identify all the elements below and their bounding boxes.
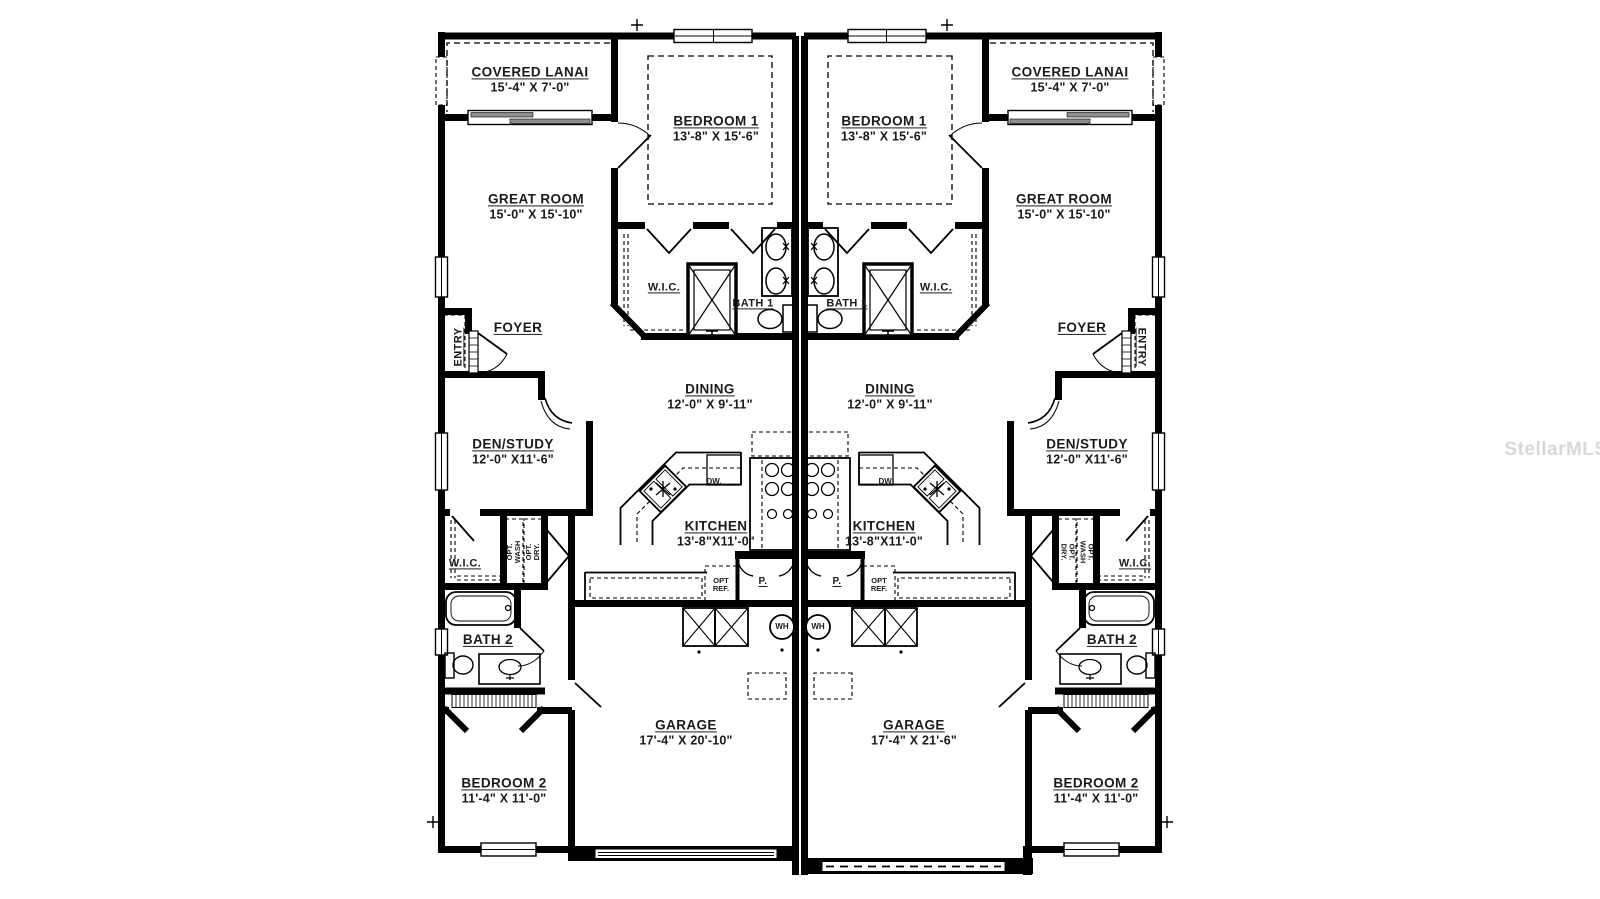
label-kitchen-left: KITCHEN13'-8"X11'-0"	[677, 518, 755, 549]
label-opt-wash-right: OPT.WASH	[1078, 541, 1095, 564]
watermark: StellarMLS	[1504, 439, 1600, 461]
label-covered-lanai-right: COVERED LANAI15'-4" X 7'-0"	[1012, 64, 1129, 95]
label-bath1-right: BATH 1	[826, 297, 867, 310]
label-bath2-right: BATH 2	[1087, 632, 1137, 648]
label-opt-dry-left: OPT.DRY.	[525, 544, 542, 561]
label-entry-right: ENTRY	[1134, 328, 1147, 367]
label-bath2-left: BATH 2	[463, 632, 513, 648]
label-bedroom1-right: BEDROOM 113'-8" X 15'-6"	[841, 113, 927, 144]
floor-plan-drawing	[0, 0, 1600, 899]
floor-plan: COVERED LANAI15'-4" X 7'-0" GREAT ROOM15…	[0, 0, 1600, 899]
label-den-study-left: DEN/STUDY12'-0" X11'-6"	[472, 436, 554, 467]
label-den-study-right: DEN/STUDY12'-0" X11'-6"	[1046, 436, 1128, 467]
label-wic-secondary-left: W.I.C.	[449, 557, 481, 570]
label-opt-ref-left: OPTREF.	[713, 577, 729, 594]
label-garage-left: GARAGE17'-4" X 20'-10"	[639, 717, 732, 748]
label-bedroom1-left: BEDROOM 113'-8" X 15'-6"	[673, 113, 759, 144]
label-covered-lanai-left: COVERED LANAI15'-4" X 7'-0"	[472, 64, 589, 95]
label-opt-ref-right: OPTREF.	[871, 577, 887, 594]
label-kitchen-right: KITCHEN13'-8"X11'-0"	[845, 518, 923, 549]
label-foyer-right: FOYER	[1058, 320, 1107, 336]
label-dining-right: DINING12'-0" X 9'-11"	[847, 381, 932, 412]
label-water-heater-right: WH	[811, 622, 824, 632]
label-wic-primary-left: W.I.C.	[648, 281, 680, 294]
label-opt-dry-right: OPT.DRY.	[1059, 544, 1076, 561]
label-bath1-left: BATH 1	[732, 297, 773, 310]
label-wic-primary-right: W.I.C.	[920, 281, 952, 294]
label-bedroom2-right: BEDROOM 211'-4" X 11'-0"	[1053, 775, 1138, 806]
label-foyer-left: FOYER	[494, 320, 543, 336]
label-bedroom2-left: BEDROOM 211'-4" X 11'-0"	[461, 775, 546, 806]
label-wic-secondary-right: W.I.C.	[1119, 557, 1151, 570]
label-entry-left: ENTRY	[452, 328, 465, 367]
label-garage-right: GARAGE17'-4" X 21'-6"	[871, 717, 957, 748]
label-dishwasher-right: DW.	[878, 477, 893, 487]
label-water-heater-left: WH	[775, 622, 788, 632]
label-pantry-left: P.	[759, 576, 768, 588]
label-great-room-right: GREAT ROOM15'-0" X 15'-10"	[1016, 191, 1112, 222]
label-pantry-right: P.	[833, 576, 842, 588]
label-opt-wash-left: OPT.WASH	[506, 541, 523, 564]
label-great-room-left: GREAT ROOM15'-0" X 15'-10"	[488, 191, 584, 222]
label-dishwasher-left: DW.	[706, 477, 721, 487]
label-dining-left: DINING12'-0" X 9'-11"	[667, 381, 752, 412]
